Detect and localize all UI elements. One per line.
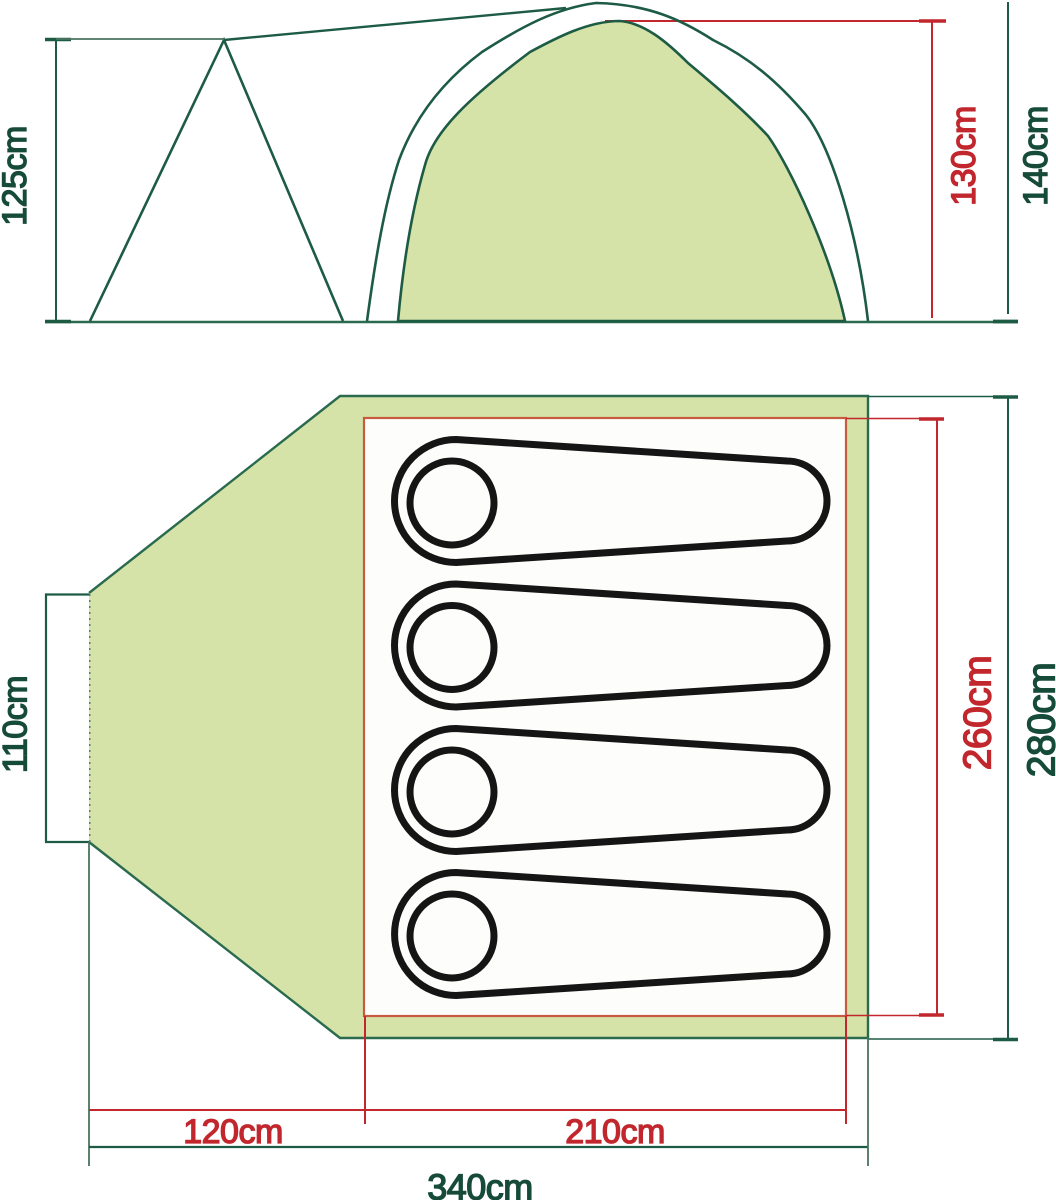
svg-text:120cm: 120cm: [183, 1113, 283, 1151]
svg-text:260cm: 260cm: [957, 656, 1000, 771]
svg-text:110cm: 110cm: [0, 676, 35, 773]
svg-text:125cm: 125cm: [0, 126, 34, 226]
svg-text:280cm: 280cm: [1021, 663, 1056, 778]
svg-text:140cm: 140cm: [1017, 106, 1055, 206]
svg-text:130cm: 130cm: [945, 106, 983, 206]
svg-text:210cm: 210cm: [565, 1113, 665, 1151]
svg-text:340cm: 340cm: [427, 1167, 533, 1200]
